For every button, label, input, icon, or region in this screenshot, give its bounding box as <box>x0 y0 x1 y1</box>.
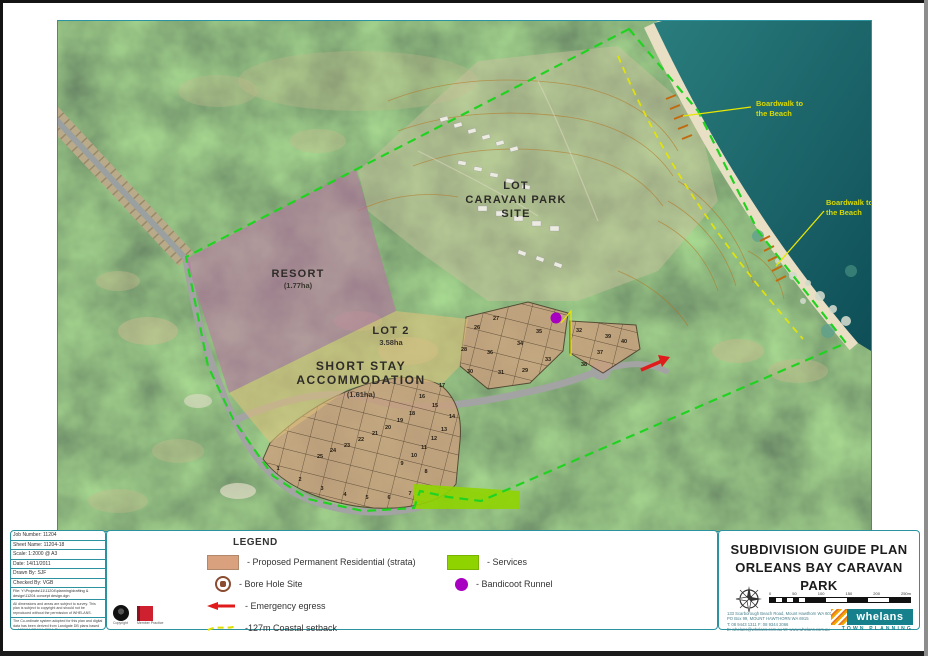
boardwalk-north-label: the Beach <box>756 109 792 118</box>
lot-number: 38 <box>581 362 587 368</box>
date: Date: 14/11/2011 <box>11 560 105 570</box>
lot-number: 10 <box>411 453 417 459</box>
lot-number: 21 <box>372 431 378 437</box>
whelans-logo: whelans TOWN PLANNING <box>831 609 913 632</box>
lot-number: 6 <box>387 495 390 501</box>
legend-item-setback: -127m Coastal setback <box>207 617 416 639</box>
coastal-setback-line-icon <box>207 623 237 633</box>
coordinate-note: The Co-ordinate system adopted for this … <box>11 618 105 630</box>
boardwalk-south-label: Boardwalk to <box>826 198 871 207</box>
copyright-note: All dimensions and areas are subject to … <box>11 600 105 617</box>
page-edge <box>0 651 928 656</box>
drawing-info-box: Job Number: 11204 Sheet Name: 11204-18 S… <box>10 530 106 630</box>
scale-bar: 0 50 100 150 200 250m <box>769 591 911 603</box>
lot-number: 1 <box>276 466 279 472</box>
address-line: E: whelans@whelans.com.au W: www.whelans… <box>727 627 845 632</box>
plan-sheet: LOT CARAVAN PARK SITE RESORT (1.77ha) LO… <box>0 0 928 656</box>
caravan-park-label: SITE <box>501 208 530 220</box>
whelans-brand-name: whelans <box>847 609 913 625</box>
tick-label: 200 <box>873 591 880 596</box>
legend-item-emergency: - Emergency egress <box>207 595 416 617</box>
lot-number: 2 <box>298 477 301 483</box>
resort-area-label: (1.77ha) <box>284 281 313 290</box>
scale-bar-segments <box>769 597 911 603</box>
page-edge <box>0 0 928 3</box>
whelans-tagline: TOWN PLANNING <box>831 626 913 632</box>
bore-hole-icon <box>215 576 231 592</box>
tick-label: 250m <box>901 591 911 596</box>
logo-caption: Member Practice <box>137 621 163 625</box>
page-edge <box>0 0 3 656</box>
north-compass-icon <box>735 585 763 613</box>
lot2-area-label: 3.58ha <box>379 338 403 347</box>
legend-item-services: - Services <box>447 551 553 573</box>
lot-number: 29 <box>522 368 528 374</box>
services-swatch <box>447 555 479 570</box>
aerial-photo: LOT CARAVAN PARK SITE RESORT (1.77ha) LO… <box>58 21 871 531</box>
caravan-park-label: CARAVAN PARK <box>465 194 566 206</box>
short-stay-label: SHORT STAY <box>316 359 406 373</box>
lot-number: 25 <box>317 454 323 460</box>
short-stay-area-label: (1.61ha) <box>347 390 376 399</box>
tick-label: 0 <box>769 591 771 596</box>
whelans-stripes-icon <box>831 609 847 625</box>
certification-seal-logo <box>113 605 129 621</box>
resort-label: RESORT <box>271 268 324 280</box>
lot-number: 32 <box>576 328 582 334</box>
boardwalk-south-label: the Beach <box>826 208 862 217</box>
lot-number: 34 <box>517 341 524 347</box>
drawn-by: Drawn By: SJF <box>11 569 105 579</box>
legend-panel: LEGEND - Proposed Permanent Residential … <box>106 530 718 630</box>
sheet-name: Sheet Name: 11204-18 <box>11 541 105 551</box>
lot-number: 9 <box>400 461 403 467</box>
boardwalk-north-label: Boardwalk to <box>756 99 804 108</box>
logo-caption: Copyright <box>113 621 129 625</box>
lot-number: 39 <box>605 334 611 340</box>
lot-number: 19 <box>397 418 403 424</box>
lot-number: 20 <box>385 425 391 431</box>
lot-number: 7 <box>408 491 411 497</box>
lot-number: 14 <box>449 414 456 420</box>
lot-number: 37 <box>597 350 603 356</box>
legend-label: - Bandicoot Runnel <box>476 579 553 589</box>
lot-number: 18 <box>409 411 415 417</box>
tick-label: 150 <box>846 591 853 596</box>
caravan-park-label: LOT <box>503 180 529 192</box>
legend-item-bore-hole: - Bore Hole Site <box>207 573 416 595</box>
lot2-label: LOT 2 <box>372 325 409 337</box>
lot-number: 33 <box>545 357 551 363</box>
lot-number: 30 <box>467 369 473 375</box>
lot-number: 5 <box>365 495 368 501</box>
lot-number: 13 <box>441 427 447 433</box>
lot-number: 16 <box>419 394 425 400</box>
legend-heading: LEGEND <box>233 537 278 548</box>
lot-number: 23 <box>344 443 350 449</box>
page-edge <box>924 0 928 656</box>
checked-by: Checked By: VGB <box>11 579 105 589</box>
legend-label: - Bore Hole Site <box>239 579 303 589</box>
lot-number: 26 <box>474 325 480 331</box>
legend-column-2: - Services - Bandicoot Runnel <box>447 551 553 595</box>
certification-logos: Copyright Member Practice <box>113 605 163 625</box>
lot-number: 27 <box>493 316 499 322</box>
lot-number: 40 <box>621 339 627 345</box>
legend-item-residential: - Proposed Permanent Residential (strata… <box>207 551 416 573</box>
scale-bar-ticks: 0 50 100 150 200 250m <box>769 591 911 596</box>
bandicoot-runnel-icon <box>455 578 468 591</box>
residential-swatch <box>207 555 239 570</box>
tick-label: 100 <box>818 591 825 596</box>
lot-number: 22 <box>358 437 364 443</box>
legend-column-1: - Proposed Permanent Residential (strata… <box>207 551 416 639</box>
lot-number: 35 <box>536 329 542 335</box>
lot-number: 8 <box>424 469 427 475</box>
tick-label: 50 <box>792 591 796 596</box>
lot-number: 12 <box>431 436 437 442</box>
legend-label: -127m Coastal setback <box>245 623 337 633</box>
lot-number: 3 <box>320 486 323 492</box>
title-block: SUBDIVISION GUIDE PLAN ORLEANS BAY CARAV… <box>718 530 920 630</box>
lot-number: 11 <box>421 445 427 451</box>
legend-label: - Emergency egress <box>245 601 326 611</box>
lot-number: 31 <box>498 370 504 376</box>
company-address: 133 Scarborough Beach Road, Mount Hawtho… <box>727 611 845 633</box>
lot-number: 24 <box>330 448 337 454</box>
legend-label: - Services <box>487 557 527 567</box>
emergency-egress-arrow-icon <box>207 601 237 611</box>
bandicoot-runnel-marker <box>551 313 562 324</box>
legend-item-bandicoot: - Bandicoot Runnel <box>447 573 553 595</box>
plan-title-line1: SUBDIVISION GUIDE PLAN <box>719 541 919 559</box>
site-plan-map: LOT CARAVAN PARK SITE RESORT (1.77ha) LO… <box>57 20 872 532</box>
legend-label: - Proposed Permanent Residential (strata… <box>247 557 416 567</box>
short-stay-label: ACCOMMODATION <box>296 373 425 387</box>
lot-number: 28 <box>461 347 467 353</box>
scale: Scale: 1:2000 @ A3 <box>11 550 105 560</box>
member-practice-logo <box>137 606 153 621</box>
file-path: File: Y:\Projects\11\11204\planning\draf… <box>11 588 105 600</box>
job-number: Job Number: 11204 <box>11 531 105 541</box>
lot-number: 15 <box>432 403 438 409</box>
lot-number: 36 <box>487 350 493 356</box>
lot-number: 17 <box>439 383 445 389</box>
